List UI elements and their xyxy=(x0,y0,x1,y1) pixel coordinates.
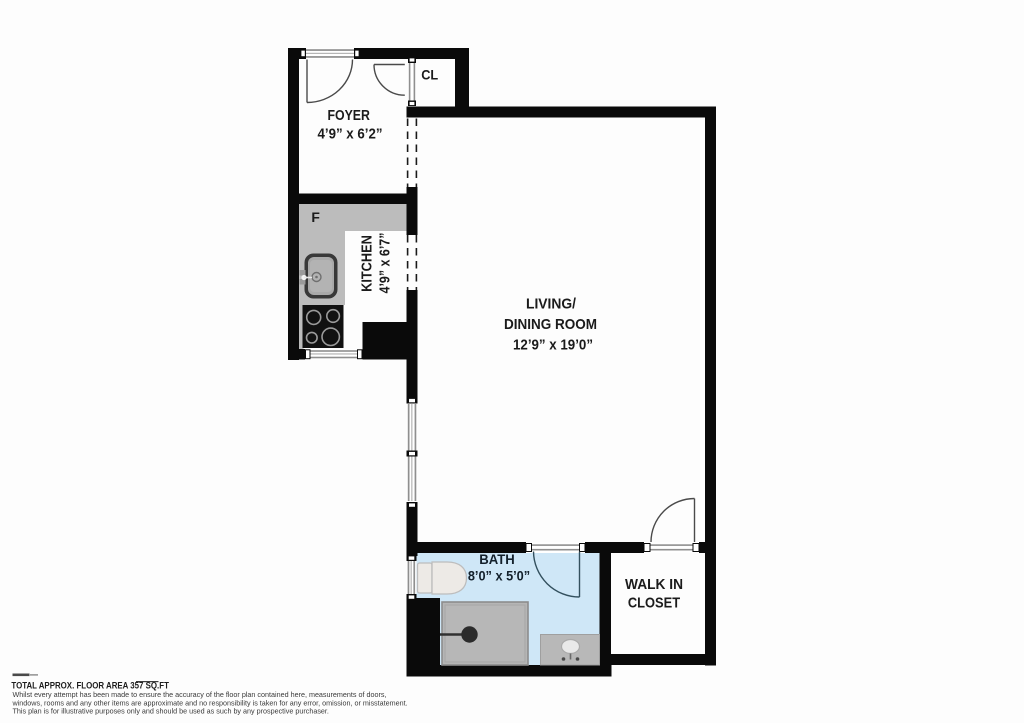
svg-text:4’9” x 6’7”: 4’9” x 6’7” xyxy=(377,233,393,294)
svg-text:8’0” x 5’0”: 8’0” x 5’0” xyxy=(468,568,530,584)
svg-text:FOYER: FOYER xyxy=(327,108,370,124)
svg-text:BATH: BATH xyxy=(479,551,515,567)
svg-text:WALK IN: WALK IN xyxy=(625,576,683,593)
svg-text:This plan is for illustrative: This plan is for illustrative purposes o… xyxy=(13,707,329,716)
svg-text:F: F xyxy=(311,210,320,225)
svg-text:CLOSET: CLOSET xyxy=(628,595,680,612)
svg-text:4’9” x 6’2”: 4’9” x 6’2” xyxy=(318,127,383,143)
svg-text:12’9” x 19’0”: 12’9” x 19’0” xyxy=(513,337,593,354)
svg-text:KITCHEN: KITCHEN xyxy=(359,235,375,292)
svg-text:CL: CL xyxy=(421,68,438,83)
svg-text:DINING ROOM: DINING ROOM xyxy=(504,316,597,333)
svg-text:LIVING/: LIVING/ xyxy=(526,296,577,313)
